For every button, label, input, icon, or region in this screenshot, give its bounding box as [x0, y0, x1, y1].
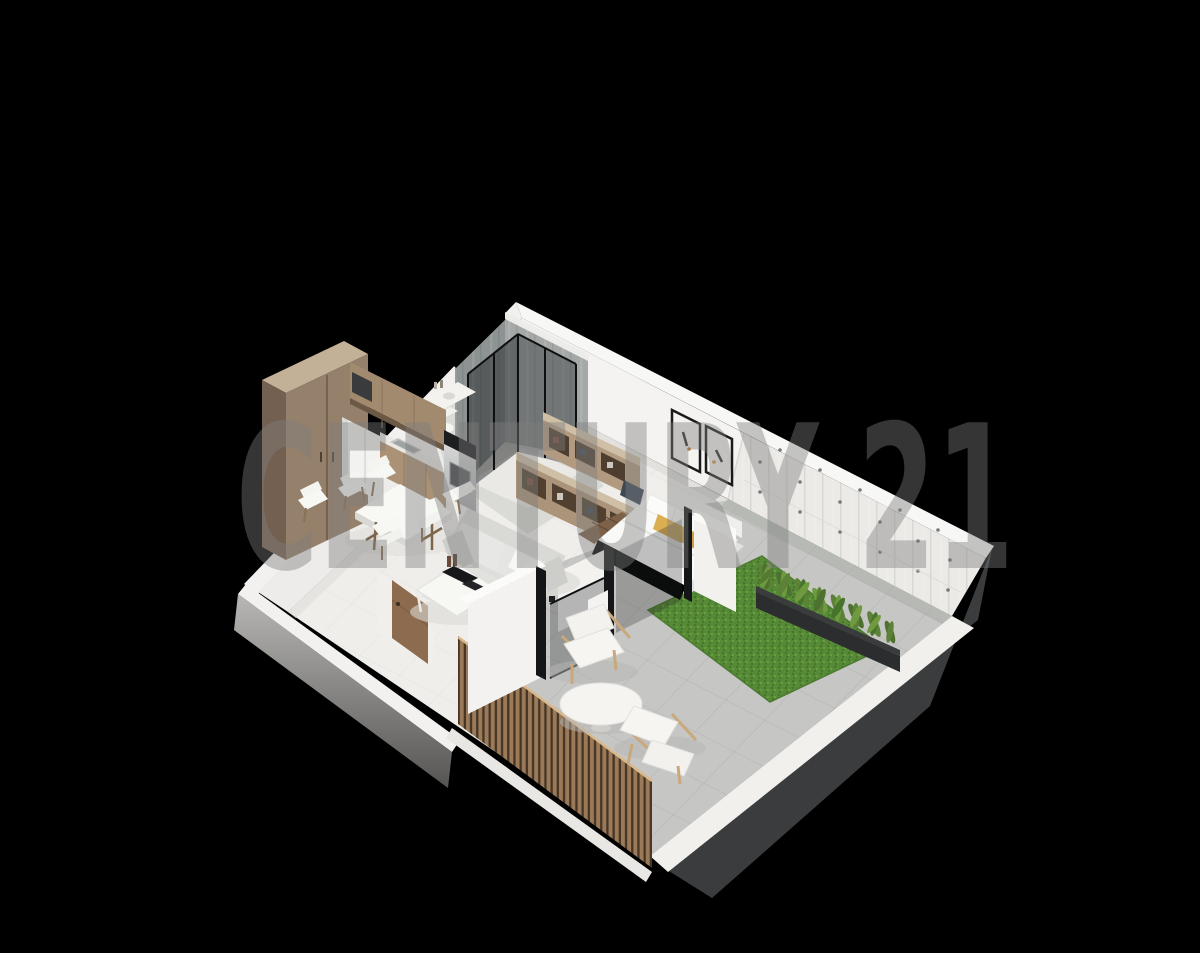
- render-canvas: CENTURY 21: [0, 0, 1200, 953]
- floorplan-render: CENTURY 21: [0, 0, 1200, 953]
- century21-watermark: CENTURY 21: [236, 383, 1014, 616]
